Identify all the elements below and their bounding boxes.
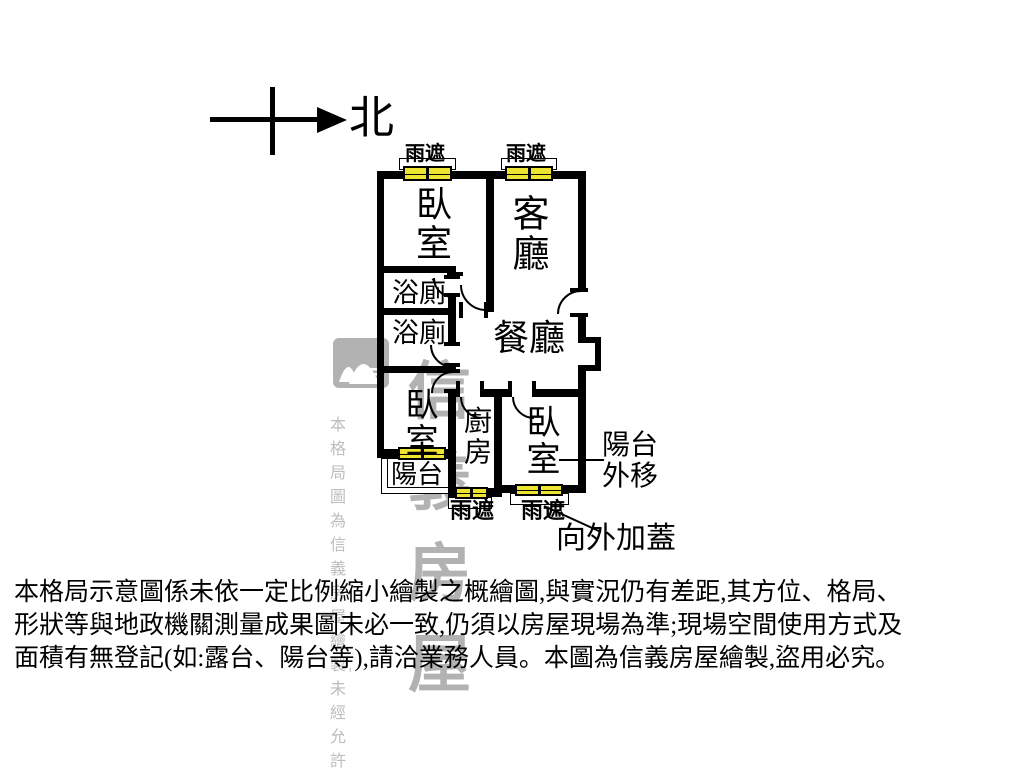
disclaimer-line-3: 面積有無登記(如:露台、陽台等),請洽業務人員。本圖為信義房屋繪製,盜用必究。 xyxy=(14,642,1016,675)
room-label-kitchen: 廚房 xyxy=(461,406,489,468)
room-label-bedroom-bottom-right: 臥室 xyxy=(522,404,556,478)
door-jamb xyxy=(444,342,460,346)
door-jamb xyxy=(484,302,488,318)
wall-bedroom-br-bottom-1 xyxy=(502,485,515,493)
door-jamb xyxy=(459,302,463,318)
room-label-balcony: 陽台 xyxy=(391,462,443,488)
door-jamb xyxy=(570,313,588,317)
wall-kitchen-bottom-1 xyxy=(448,488,455,497)
door-jamb xyxy=(444,293,460,297)
disclaimer-line-2: 形狀等與地政機關測量成果圖未必一致,仍須以房屋現場為準;現場空間使用方式及 xyxy=(14,609,1016,642)
door-jamb xyxy=(456,381,460,397)
door-jamb xyxy=(480,381,484,397)
wall-outer-right-upper xyxy=(578,171,586,292)
rain-shelter-label-top-left: 雨遮 xyxy=(405,144,445,164)
rain-shelter-label-top-right: 雨遮 xyxy=(506,144,546,164)
room-label-bathroom-lower: 浴廁 xyxy=(392,320,446,347)
outward-addition-label: 向外加蓋 xyxy=(556,524,676,554)
door-jamb xyxy=(444,369,460,373)
wall-bedroom-bl-bottom-2 xyxy=(446,449,456,458)
door-jamb xyxy=(508,381,512,397)
wall-bedroom-br-bottom-2 xyxy=(563,485,586,493)
floorplan-page: 信義房屋 本格局圖為信義房屋繪製,未經允許請勿盜用,違者必究 北 xyxy=(0,0,1024,768)
north-arrow-crossbar xyxy=(270,87,275,155)
door-jamb xyxy=(532,381,536,397)
wall-hall-left-2 xyxy=(448,296,456,345)
balcony-relocated-label-line1: 陽台 xyxy=(602,432,658,460)
window-bedroom-br xyxy=(515,484,563,496)
balcony-relocated-label-line2: 外移 xyxy=(602,463,658,491)
door-jamb xyxy=(570,288,588,292)
disclaimer-text: 本格局示意圖係未依一定比例縮小繪製之概繪圖,與實況仍有差距,其方位、格局、 形狀… xyxy=(14,576,1016,675)
north-arrow-shaft xyxy=(210,117,320,122)
rain-shelter-label-bottom-left: 雨遮 xyxy=(450,500,494,522)
wall-bedroom-living-divider xyxy=(486,171,494,312)
wall-hall-left-4 xyxy=(448,392,456,497)
door-jamb xyxy=(444,363,460,367)
room-label-bathroom-upper: 浴廁 xyxy=(392,280,446,307)
door-jamb xyxy=(447,272,463,276)
wall-kitchen-right xyxy=(494,397,502,497)
wall-bathroom-bedroom-divider xyxy=(377,366,448,373)
disclaimer-line-1: 本格局示意圖係未依一定比例縮小繪製之概繪圖,與實況仍有差距,其方位、格局、 xyxy=(14,576,1016,609)
door-arc-entrance xyxy=(558,291,581,314)
door-arc-hallway xyxy=(461,285,486,310)
wall-outer-right-lower xyxy=(578,365,586,493)
room-label-bedroom-top-left: 臥室 xyxy=(413,185,449,263)
north-arrow-head-icon xyxy=(317,107,347,133)
window-top-left xyxy=(403,166,452,181)
wall-bedroom-bl-bottom-1 xyxy=(377,449,398,458)
wall-below-bedroom-tl xyxy=(377,266,456,273)
window-top-right xyxy=(505,166,553,181)
north-label: 北 xyxy=(349,96,394,141)
room-label-dining-room: 餐廳 xyxy=(493,320,565,356)
room-label-bedroom-bottom-left: 臥室 xyxy=(401,387,434,459)
wall-dining-bottom-1 xyxy=(482,389,510,397)
room-label-living-room: 客廳 xyxy=(508,194,545,274)
wall-bathroom-divider xyxy=(377,308,448,315)
rain-shelter-label-bottom-right: 雨遮 xyxy=(521,500,565,522)
